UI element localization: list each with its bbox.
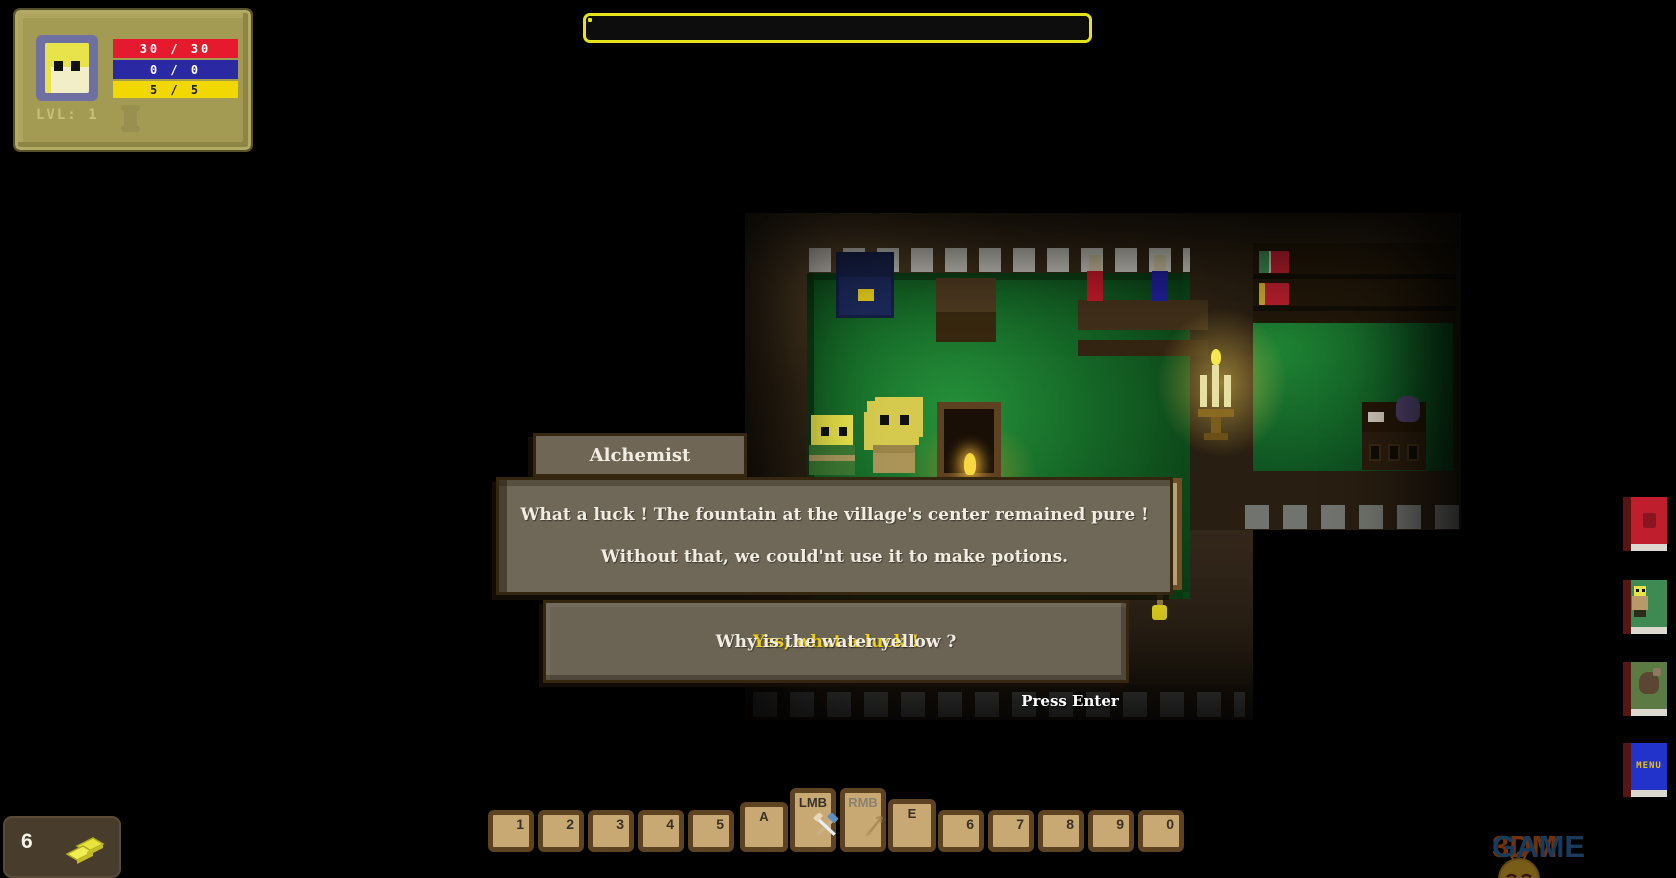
dialog-choice[interactable]: Why is the water yellow ? [716, 632, 957, 652]
candle [1200, 375, 1207, 407]
candelabra-stem [1211, 417, 1221, 433]
sack-tie [1653, 668, 1661, 676]
hotbar-key-2[interactable]: 2 [538, 810, 584, 852]
book-pages [1631, 790, 1667, 797]
dialog-choice-box: Yes, what a luck ! Why is the water yell… [543, 600, 1129, 683]
book-cover [1631, 662, 1667, 709]
dialog-line: Without that, we could'nt use it to make… [601, 547, 1068, 567]
hotbar-key-3[interactable]: 3 [588, 810, 634, 852]
bestiary-book[interactable] [1623, 497, 1667, 551]
book-pages [1631, 544, 1667, 551]
blue-cabinet [836, 252, 894, 318]
level-label: LVL: 1 [36, 107, 99, 123]
hotbar-key-4[interactable]: 4 [638, 810, 684, 852]
candle-flame [1211, 349, 1221, 365]
shelf-board [1253, 274, 1456, 279]
xp-segment [588, 18, 592, 22]
fireplace-flame [964, 453, 976, 475]
hotbar-key-7[interactable]: 7 [988, 810, 1034, 852]
press-enter-hint: Press Enter [1000, 692, 1140, 710]
book-spine [1623, 743, 1631, 797]
mana-bar: 0 / 0 [113, 60, 238, 79]
hotbar-key-rmb[interactable]: RMB [840, 788, 886, 852]
blue-potion-cap [1154, 255, 1166, 272]
potion-counter [1078, 300, 1208, 330]
xp-bar [583, 13, 1092, 43]
desk-drawer [1407, 444, 1419, 461]
red-potion-cap [1089, 255, 1101, 272]
dialog-speaker-name: Alchemist [590, 445, 691, 466]
hotbar-key-lmb[interactable]: LMB [790, 788, 836, 852]
menu-book[interactable]: MENU [1623, 743, 1667, 797]
desk-paper [1368, 412, 1384, 422]
watermark: 3DM GAME [1492, 818, 1676, 876]
candle [1224, 375, 1231, 407]
hotbar-key-8[interactable]: 8 [1038, 810, 1084, 852]
villager-legs [1634, 610, 1646, 617]
player-eye [821, 427, 829, 436]
book-spine [1623, 662, 1631, 716]
bookshelf [1253, 243, 1456, 323]
candelabra-foot [1204, 433, 1228, 440]
book-row [1259, 249, 1450, 273]
desk-drawer [1369, 444, 1381, 461]
wall-tiles-bottom [753, 692, 1245, 717]
desk-sack [1396, 396, 1420, 422]
alchemist-npc-head [867, 401, 919, 445]
hp-bar: 30 / 30 [113, 39, 238, 58]
emblem-icon [1643, 513, 1656, 528]
book-cover [1631, 497, 1667, 544]
dialog-line: What a luck ! The fountain at the villag… [520, 505, 1148, 525]
game-screen: 30 / 30 0 / 0 5 / 5 LVL: 1 [0, 0, 1676, 878]
bone-icon [124, 105, 137, 132]
desk [1362, 402, 1426, 470]
desk-drawer [1388, 444, 1400, 461]
stamina-bar: 5 / 5 [113, 81, 238, 98]
cabinet-handle [858, 289, 874, 301]
villager-eye [1642, 589, 1645, 592]
candelabra [1198, 409, 1234, 417]
villager-eye [1636, 589, 1639, 592]
hotbar-key-1[interactable]: 1 [488, 810, 534, 852]
avatar-eye [54, 61, 63, 71]
potion-counter-shelf [1078, 340, 1208, 356]
gold-amount: 6 [21, 830, 33, 854]
character-book[interactable] [1623, 580, 1667, 634]
hotbar-key-0[interactable]: 0 [1138, 810, 1184, 852]
villager-body [1632, 596, 1648, 610]
hotbar-key-9[interactable]: 9 [1088, 810, 1134, 852]
player-eye [839, 427, 847, 436]
player-belt [809, 455, 855, 461]
book-spine [1623, 580, 1631, 634]
book-spine [1623, 497, 1631, 551]
wooden-table [936, 278, 996, 342]
book-pages [1631, 709, 1667, 716]
hotbar-key-5[interactable]: 5 [688, 810, 734, 852]
gold-counter-panel: 6 [3, 816, 121, 878]
hotbar-key-a[interactable]: A [740, 802, 788, 852]
avatar-hood-side [45, 67, 51, 93]
hotbar-key-e[interactable]: E [888, 799, 936, 852]
yellow-vial [1152, 605, 1167, 620]
candle [1212, 365, 1219, 407]
dialog-speaker-box: Alchemist [533, 433, 747, 477]
shelf-board [1253, 306, 1456, 311]
book-row [1259, 281, 1450, 305]
blue-potion [1152, 271, 1168, 301]
red-potion [1087, 271, 1103, 301]
avatar-hood [45, 43, 89, 67]
avatar-face [45, 43, 89, 93]
dialog-box: What a luck ! The fountain at the villag… [496, 477, 1173, 595]
wall-tiles-right [1245, 505, 1461, 529]
alchemist-eye [900, 415, 909, 425]
alchemist-eye [880, 415, 889, 425]
watermark-game: GAME [1492, 829, 1585, 865]
avatar-eye [71, 61, 80, 71]
player-avatar [36, 35, 98, 101]
book-pages [1631, 627, 1667, 634]
hotbar-key-6[interactable]: 6 [938, 810, 984, 852]
menu-book-label: MENU [1631, 761, 1667, 771]
inventory-book[interactable] [1623, 662, 1667, 716]
alchemist-npc-body [873, 445, 915, 473]
player-stats-panel: 30 / 30 0 / 0 5 / 5 LVL: 1 [15, 10, 251, 150]
